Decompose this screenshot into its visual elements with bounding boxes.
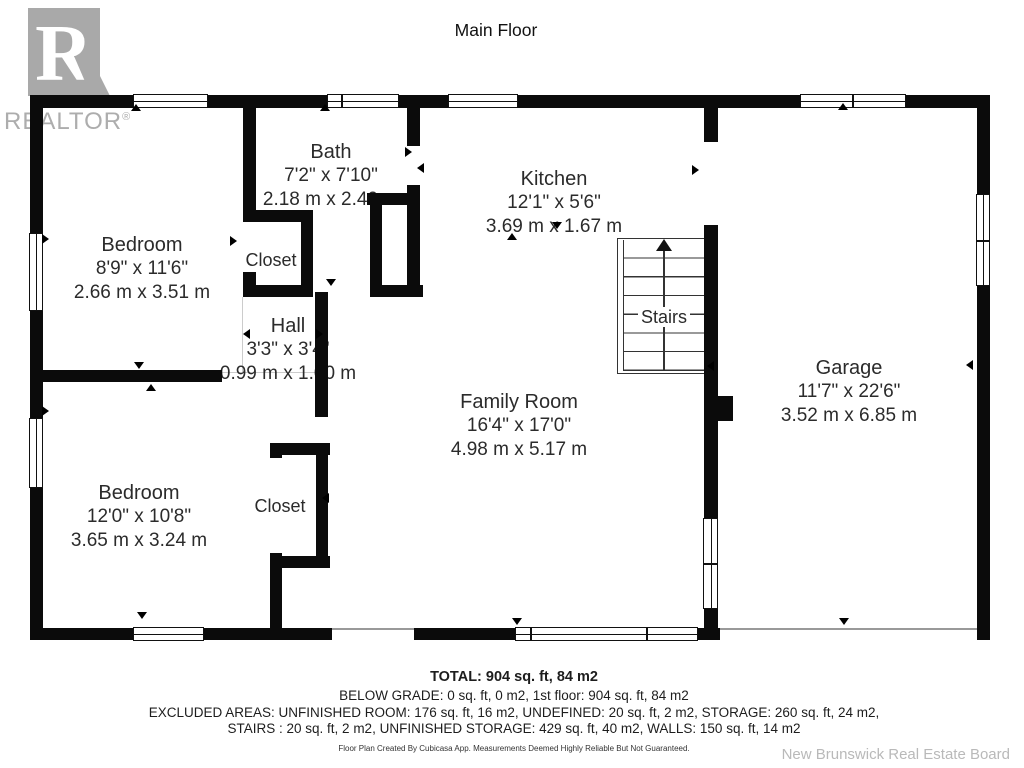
door-arrow-icon [326, 279, 336, 286]
wall-closet1-left [243, 272, 256, 297]
door-arrow-icon [405, 147, 412, 157]
room-dims-m: 4.98 m x 5.17 m [451, 438, 587, 462]
wall-bath-left [243, 95, 256, 222]
page-title: Main Floor [455, 20, 538, 41]
window-mullion [530, 628, 532, 640]
room-name: Family Room [451, 390, 587, 414]
window [29, 418, 43, 488]
door-arrow-icon [552, 222, 562, 229]
window-mullion [704, 563, 717, 565]
window [703, 518, 718, 609]
room-name: Bedroom [74, 233, 210, 257]
door-arrow-icon [230, 236, 237, 246]
window [515, 627, 698, 641]
window-mullion [852, 95, 854, 107]
room-label-bedroom-2: Bedroom 12'0" x 10'8" 3.65 m x 3.24 m [71, 481, 207, 553]
room-dims-ft: 16'4" x 17'0" [451, 414, 587, 438]
room-dims-ft: 12'1" x 5'6" [486, 191, 622, 215]
wall-garage-pier [704, 396, 733, 421]
door-arrow-icon [320, 104, 330, 111]
room-dims-ft: 8'9" x 11'6" [74, 257, 210, 281]
window [800, 94, 906, 108]
door-arrow-icon [839, 618, 849, 625]
door-arrow-icon [692, 165, 699, 175]
room-dims-ft: 3'3" x 3'4" [220, 338, 356, 362]
room-name: Hall [220, 314, 356, 338]
room-name: Stairs [638, 307, 690, 327]
door-arrow-icon [322, 493, 329, 503]
wall-garage-lower [704, 608, 718, 640]
room-name: Closet [254, 494, 305, 518]
door-arrow-icon [707, 361, 714, 371]
wall-left [30, 95, 43, 640]
below-grade-text: BELOW GRADE: 0 sq. ft, 0 m2, 1st floor: … [44, 688, 984, 704]
window [448, 94, 518, 108]
realtor-brand: REALTOR [4, 108, 122, 135]
room-label-stairs: Stairs [638, 305, 690, 330]
window [976, 194, 990, 286]
wall-garage-upper [704, 95, 718, 142]
board-attribution: New Brunswick Real Estate Board [782, 746, 1010, 763]
door-arrow-icon [134, 362, 144, 369]
room-dims-ft: 11'7" x 22'6" [781, 380, 917, 404]
window-mullion [977, 240, 989, 242]
wall-bath-right-upper [407, 95, 420, 146]
room-label-closet-2: Closet [254, 494, 305, 518]
room-label-garage: Garage 11'7" x 22'6" 3.52 m x 6.85 m [781, 356, 917, 428]
room-name: Bath [263, 140, 399, 164]
window-mullion [341, 95, 343, 107]
room-name: Bedroom [71, 481, 207, 505]
window [133, 94, 208, 108]
door-arrow-icon [966, 360, 973, 370]
room-name: Closet [245, 248, 296, 272]
wall-bedroom-divider [30, 370, 222, 382]
room-dims-m: 3.65 m x 3.24 m [71, 529, 207, 553]
door-arrow-icon [137, 612, 147, 619]
svg-text:R: R [35, 10, 94, 98]
wall-bath-right-lower [407, 185, 420, 297]
realtor-logo-text: REALTOR® [4, 108, 131, 136]
door-arrow-icon [507, 233, 517, 240]
garage-door-opening-line [720, 628, 978, 630]
excluded-areas-text-2: STAIRS : 20 sq. ft, 2 m2, UNFINISHED STO… [44, 721, 984, 737]
room-dims-m: 2.66 m x 3.51 m [74, 281, 210, 305]
registered-mark: ® [122, 111, 131, 123]
stairs-up-arrow-icon [656, 239, 672, 251]
wall-right [977, 95, 990, 640]
room-label-hall: Hall 3'3" x 3'4" 0.99 m x 1.00 m [220, 314, 356, 386]
excluded-areas-text: EXCLUDED AREAS: UNFINISHED ROOM: 176 sq.… [44, 705, 984, 721]
room-name: Garage [781, 356, 917, 380]
wall-hall-right [315, 292, 328, 417]
door-arrow-icon [417, 163, 424, 173]
room-name: Kitchen [486, 167, 622, 191]
floor-opening-line [332, 628, 414, 630]
room-dims-ft: 7'2" x 7'10" [263, 164, 399, 188]
door-arrow-icon [146, 384, 156, 391]
door-arrow-icon [512, 618, 522, 625]
room-dims-ft: 12'0" x 10'8" [71, 505, 207, 529]
wall-garage-mid [704, 225, 718, 520]
realtor-logo-icon: R [28, 8, 112, 105]
room-label-bedroom-1: Bedroom 8'9" x 11'6" 2.66 m x 3.51 m [74, 233, 210, 305]
wall-closet2-right [316, 443, 328, 568]
wall-bottom [977, 628, 990, 640]
room-label-family-room: Family Room 16'4" x 17'0" 4.98 m x 5.17 … [451, 390, 587, 462]
door-arrow-icon [42, 406, 49, 416]
window-mullion [646, 628, 648, 640]
total-area-text: TOTAL: 904 sq. ft, 84 m2 [44, 669, 984, 685]
door-arrow-icon [243, 329, 250, 339]
floor-plan-page: R REALTOR® Main Floor [0, 0, 1024, 768]
door-arrow-icon [42, 234, 49, 244]
window [327, 94, 399, 108]
area-summary: TOTAL: 904 sq. ft, 84 m2 BELOW GRADE: 0 … [44, 669, 984, 753]
wall-closet1-right [301, 210, 313, 297]
room-dims-m: 3.52 m x 6.85 m [781, 404, 917, 428]
room-dims-m: 0.99 m x 1.00 m [220, 362, 356, 386]
window [133, 627, 204, 641]
window [29, 233, 43, 311]
realtor-r-mark: R [28, 8, 112, 100]
door-arrow-icon [316, 329, 323, 339]
wall-shaft-left [370, 205, 382, 297]
door-arrow-icon [838, 103, 848, 110]
room-label-closet-1: Closet [245, 248, 296, 272]
door-arrow-icon [131, 104, 141, 111]
